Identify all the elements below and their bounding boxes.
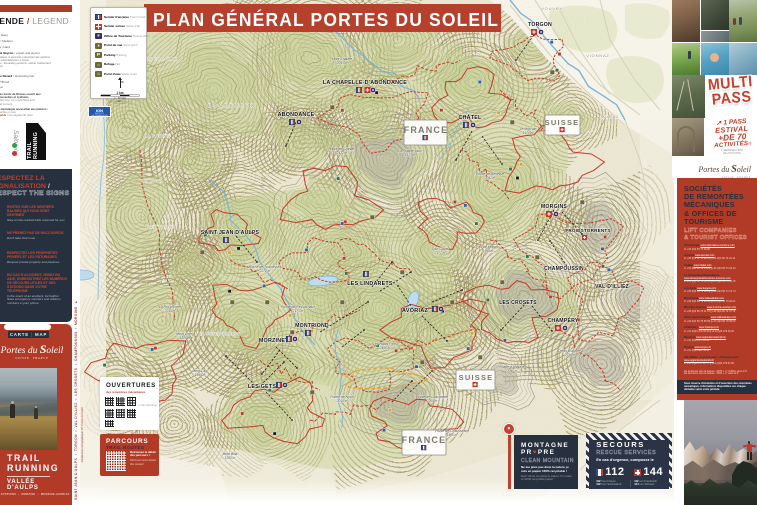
svg-text:BONNEVAUX: BONNEVAUX: [208, 103, 256, 108]
svg-text:VIONNAZ: VIONNAZ: [586, 53, 609, 58]
svg-text:CHAMPÉRY: CHAMPÉRY: [547, 316, 578, 324]
svg-text:2205 m: 2205 m: [426, 399, 438, 403]
svg-text:2172 m: 2172 m: [434, 251, 446, 255]
svg-text:2756 m: 2756 m: [564, 353, 576, 357]
svg-text:SUISSE: SUISSE: [545, 118, 580, 127]
svg-text:2466 m: 2466 m: [379, 346, 391, 350]
svg-text:LA CÔTE D'ARBROZ: LA CÔTE D'ARBROZ: [200, 331, 241, 336]
svg-text:2432 m: 2432 m: [336, 151, 348, 155]
svg-text:1880 m: 1880 m: [447, 433, 458, 437]
svg-text:1699 m: 1699 m: [195, 373, 206, 377]
svg-text:2093 m: 2093 m: [336, 61, 348, 65]
svg-text:VAL-D'ILLIEZ: VAL-D'ILLIEZ: [595, 284, 629, 290]
svg-text:2173 m: 2173 m: [292, 309, 304, 313]
svg-text:1300 m: 1300 m: [225, 456, 236, 460]
svg-text:1826 m: 1826 m: [180, 336, 191, 340]
svg-text:2244 m: 2244 m: [164, 309, 176, 313]
svg-text:MURAZ: MURAZ: [601, 114, 619, 119]
svg-text:2090 m: 2090 m: [506, 369, 518, 373]
svg-text:2019 m: 2019 m: [336, 399, 348, 403]
svg-text:VOUVRY: VOUVRY: [541, 6, 563, 11]
svg-text:LES GETS: LES GETS: [248, 384, 276, 390]
svg-text:LE BIOT: LE BIOT: [142, 178, 163, 183]
svg-text:2042 m: 2042 m: [484, 176, 496, 180]
svg-text:FRANCE: FRANCE: [404, 125, 449, 135]
svg-text:SAINT JEAN D'AULPS: SAINT JEAN D'AULPS: [201, 230, 260, 236]
svg-text:TORGON: TORGON: [528, 22, 552, 28]
svg-text:LA FORCLAZ: LA FORCLAZ: [146, 57, 177, 61]
svg-text:1970 m: 1970 m: [523, 131, 534, 135]
svg-text:MORGINS: MORGINS: [541, 204, 568, 210]
svg-text:FRANCE: FRANCE: [402, 435, 447, 445]
svg-text:SEYTROUX: SEYTROUX: [148, 224, 176, 229]
svg-text:MONTRIOND: MONTRIOND: [295, 323, 329, 329]
svg-text:SUISSE: SUISSE: [459, 373, 494, 382]
svg-text:LES LINDARETS: LES LINDARETS: [347, 281, 393, 287]
svg-text:CHAMPOUSSIN: CHAMPOUSSIN: [544, 266, 584, 272]
svg-text:1369 m: 1369 m: [483, 249, 494, 253]
svg-text:1633 m: 1633 m: [405, 153, 416, 157]
svg-text:AVORIAZ: AVORIAZ: [402, 308, 429, 314]
svg-text:LA BAUME: LA BAUME: [144, 134, 169, 138]
svg-text:LA CHAPELLE-D'ABONDANCE: LA CHAPELLE-D'ABONDANCE: [323, 80, 407, 86]
svg-text:CHÂTEL: CHÂTEL: [458, 114, 482, 121]
svg-text:ABONDANCE: ABONDANCE: [278, 112, 315, 118]
svg-text:FROIDSTORRENTS: FROIDSTORRENTS: [565, 228, 610, 233]
svg-text:2278 m: 2278 m: [259, 269, 271, 273]
svg-text:MORZINE: MORZINE: [259, 338, 285, 344]
svg-text:LES CROSETS: LES CROSETS: [499, 300, 537, 306]
